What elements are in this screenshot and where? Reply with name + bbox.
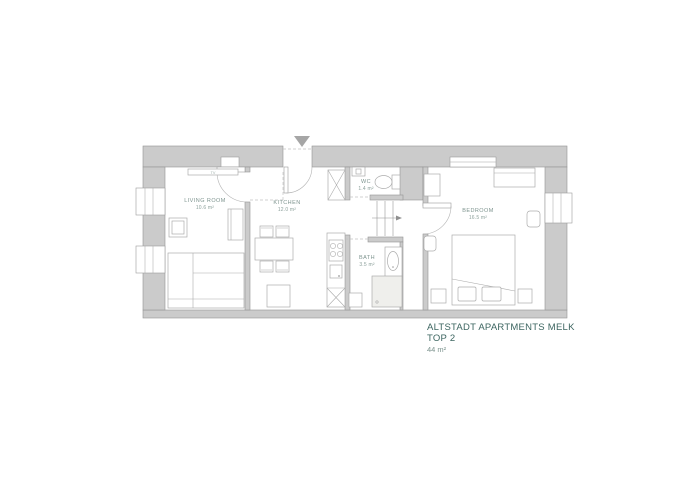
chair <box>260 226 273 237</box>
living-window-upper <box>136 188 165 215</box>
kitchen-counter <box>327 233 345 307</box>
dining-set <box>255 226 293 272</box>
kitchen-furniture <box>255 170 345 307</box>
living-furniture <box>168 169 244 308</box>
wardrobe <box>494 168 535 187</box>
double-bed <box>452 235 515 305</box>
floor-plan-page: LIVING ROOM 10.6 m² KITCHEN 12.0 m² WC 1… <box>0 0 700 500</box>
project-title: ALTSTADT APARTMENTS MELK <box>427 323 647 334</box>
bedroom-area: 16.5 m² <box>469 215 487 221</box>
bedroom-side-item <box>424 236 436 251</box>
unit-area: 44 m² <box>427 345 647 354</box>
wc-vent-window <box>352 167 365 176</box>
living-room-area: 10.6 m² <box>196 205 214 211</box>
armchair <box>169 218 187 237</box>
kitchen-label: KITCHEN <box>273 200 300 206</box>
nightstand-right <box>518 289 532 303</box>
bath-area: 3.5 m² <box>359 262 375 268</box>
bedroom-door <box>423 203 451 234</box>
floor-plan: LIVING ROOM 10.6 m² KITCHEN 12.0 m² WC 1… <box>0 0 700 500</box>
bedroom-window-top <box>450 157 496 167</box>
kitchen-cabinet <box>267 285 290 307</box>
chair <box>260 261 273 272</box>
kitchen-wc-wall <box>345 167 350 200</box>
kitchen-area: 12.0 m² <box>278 207 296 213</box>
bath-top-wall <box>368 237 403 242</box>
entrance-arrow-marker <box>294 136 310 147</box>
wc-area: 1.4 m² <box>358 186 374 192</box>
pillow <box>458 287 476 301</box>
unit-title: TOP 2 <box>427 334 647 345</box>
right-wall <box>545 167 567 310</box>
chair <box>276 226 289 237</box>
kitchen-sink <box>330 265 342 278</box>
hall-steps <box>372 201 402 236</box>
shower <box>372 276 402 307</box>
sofa-bed <box>168 253 244 308</box>
title-block: ALTSTADT APARTMENTS MELK TOP 2 44 m² <box>427 323 647 354</box>
stove <box>329 240 343 261</box>
chair <box>276 261 289 272</box>
top-wall-left <box>143 146 283 167</box>
dresser <box>424 174 440 196</box>
nightstand-left <box>431 289 446 303</box>
living-kitchen-wall-stub <box>245 167 250 172</box>
living-kitchen-wall <box>245 202 250 310</box>
sink-drain <box>338 275 340 277</box>
entry-zone-dash <box>250 172 283 200</box>
entrance-door <box>284 167 312 193</box>
bath-label: BATH <box>359 255 375 261</box>
bedroom-chair <box>527 211 540 227</box>
living-room-label: LIVING ROOM <box>184 198 226 204</box>
bedroom-label: BEDROOM <box>462 208 494 214</box>
steps-direction-arrow <box>396 216 402 221</box>
bedroom-furniture <box>424 168 540 305</box>
wc-bottom-wall <box>370 195 403 200</box>
living-window-lower <box>136 246 165 273</box>
wc-fixtures <box>375 175 400 189</box>
toilet <box>375 175 400 189</box>
living-cabinet <box>228 209 243 240</box>
wc-label: WC <box>361 179 371 185</box>
bedroom-window-right <box>545 193 572 223</box>
top-wall-right <box>312 146 567 167</box>
dining-table <box>255 238 293 260</box>
pillow <box>482 287 501 301</box>
shaft <box>328 170 345 200</box>
bath-fixtures <box>349 247 402 307</box>
bath-sink <box>385 247 402 277</box>
washing-machine <box>349 293 362 307</box>
wc-bedroom-wall-block <box>400 167 423 200</box>
bottom-wall <box>143 310 567 318</box>
living-wall-niche <box>221 157 239 167</box>
tv-label: TV <box>211 171 216 175</box>
